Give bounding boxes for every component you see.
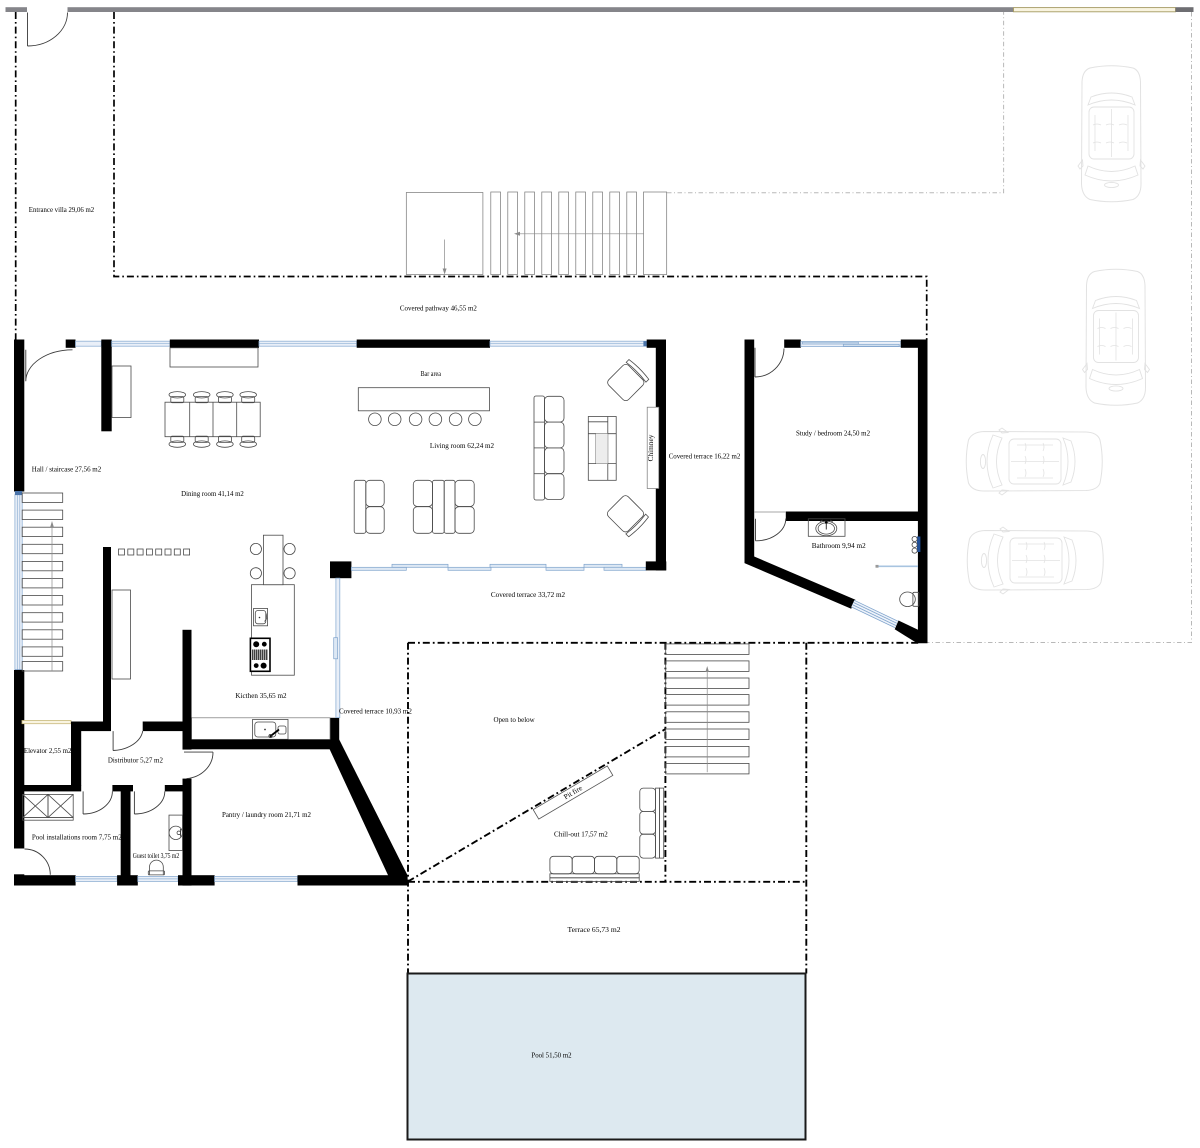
svg-text:Bathroom 9,94 m2: Bathroom 9,94 m2 [812,541,866,550]
svg-text:Terrace 65,73 m2: Terrace 65,73 m2 [568,925,621,934]
svg-text:Bar area: Bar area [420,369,441,378]
svg-text:Guest toilet 3,75 m2: Guest toilet 3,75 m2 [133,851,180,860]
svg-text:Covered terrace 16,22 m2: Covered terrace 16,22 m2 [669,451,741,460]
svg-text:Pool installations room 7,75 m: Pool installations room 7,75 m2 [32,833,122,842]
svg-text:Chimney: Chimney [646,434,655,461]
svg-text:Covered terrace 10,93 m2: Covered terrace 10,93 m2 [339,707,412,716]
svg-text:Elevator 2,55 m2: Elevator 2,55 m2 [24,746,72,755]
svg-text:Living room 62,24 m2: Living room 62,24 m2 [430,441,495,450]
svg-text:Open to below: Open to below [494,715,536,724]
svg-text:Pool 51,50 m2: Pool 51,50 m2 [531,1051,572,1060]
svg-text:Distributor 5,27 m2: Distributor 5,27 m2 [108,756,163,765]
svg-text:Kicthen 35,65 m2: Kicthen 35,65 m2 [235,691,287,700]
svg-text:Dining room 41,14 m2: Dining room 41,14 m2 [181,489,244,498]
svg-text:Covered terrace 33,72 m2: Covered terrace 33,72 m2 [491,590,566,599]
svg-text:Study / bedroom 24,50 m2: Study / bedroom 24,50 m2 [796,429,870,438]
svg-text:Pantry / laundry room 21,71 m2: Pantry / laundry room 21,71 m2 [222,810,311,819]
svg-text:Chill-out 17,57 m2: Chill-out 17,57 m2 [554,829,608,838]
svg-text:Entrance villa 29,06 m2: Entrance villa 29,06 m2 [29,205,95,214]
svg-text:Hall / staircase 27,56 m2: Hall / staircase 27,56 m2 [32,465,102,474]
svg-text:Covered pathway 46,55 m2: Covered pathway 46,55 m2 [400,304,477,313]
